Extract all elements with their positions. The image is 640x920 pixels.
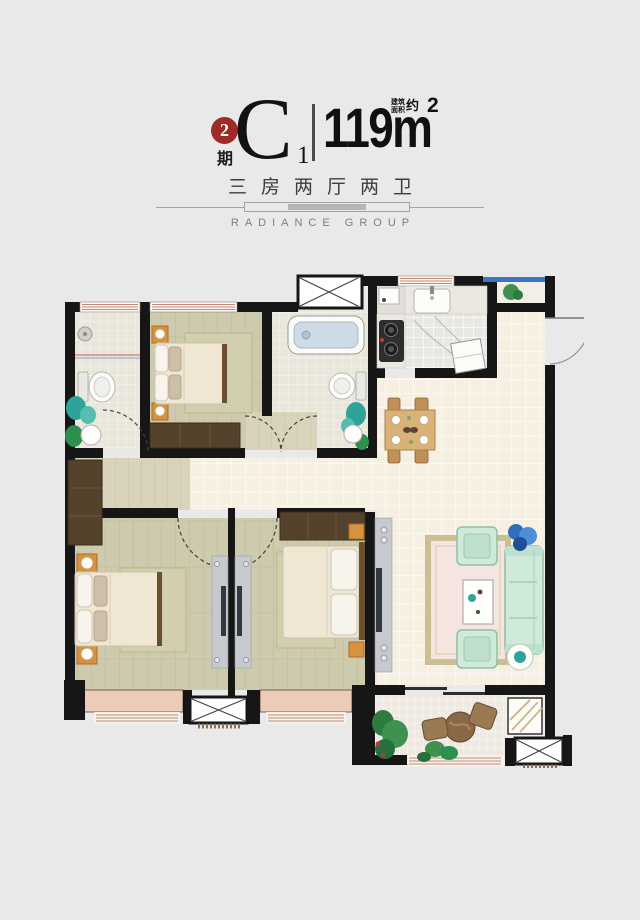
tv-icon [221,586,226,636]
area-prefix-line2: 面积 [391,107,405,115]
header-divider [312,104,315,161]
bedroom3-bay-window [260,690,352,712]
balcony-railing [483,277,545,282]
brand-name: RADIANCE GROUP [0,217,640,229]
master-bay-window [84,690,183,712]
bed [283,542,365,640]
armchair [457,527,497,565]
balcony-chair [421,717,448,741]
kitchen [377,286,487,373]
area-prefix-approx: 约 [406,99,419,113]
unit-letter: C [234,86,293,174]
brand-rule-inner [288,204,366,210]
layout-description: 三房两厅两卫 [0,172,640,199]
kitchen-window [398,276,454,286]
armchair [457,630,497,668]
entrance-door [545,318,584,364]
bathtub-icon [288,316,364,354]
toilet-icon [329,372,366,400]
bed-footboard [157,572,162,646]
tv-icon [376,568,382,632]
balcony-sliding-door [405,687,485,695]
tv-icon [237,586,242,636]
basin-icon [81,425,101,445]
bed [155,343,227,404]
decor-plate [507,644,533,670]
wall-cabinet [379,288,399,304]
bed-footboard [222,344,227,403]
page-background: 2 期 C 1 119m 2 建筑 面积 约 三房两厅两卫 RADIANCE G… [0,0,640,920]
bed [75,572,162,646]
toilet-icon [78,372,115,402]
stove-icon [379,320,404,362]
floor-plan-image [64,268,584,768]
wardrobe [150,423,240,448]
basin-icon [344,425,362,443]
nightstand [349,524,364,539]
fridge-icon [451,339,486,374]
hall-tile-floor [190,458,377,510]
ac-unit-panel [508,698,542,734]
bedroom2-window [150,302,237,312]
sofa [505,546,543,654]
entry-floor [497,312,545,378]
nightstand [349,642,364,657]
bedroom2 [150,326,252,448]
unit-index: 1 [297,142,310,170]
sink-icon [414,286,450,313]
bathroom1-window [80,302,140,312]
phase-number: 2 [220,120,229,141]
area-prefix-line1: 建筑 [391,99,405,107]
area-prefix: 建筑 面积 约 [391,99,419,115]
coffee-table [463,580,493,624]
bed-headboard [359,542,365,640]
area-superscript: 2 [427,94,439,118]
wardrobe [68,460,102,545]
